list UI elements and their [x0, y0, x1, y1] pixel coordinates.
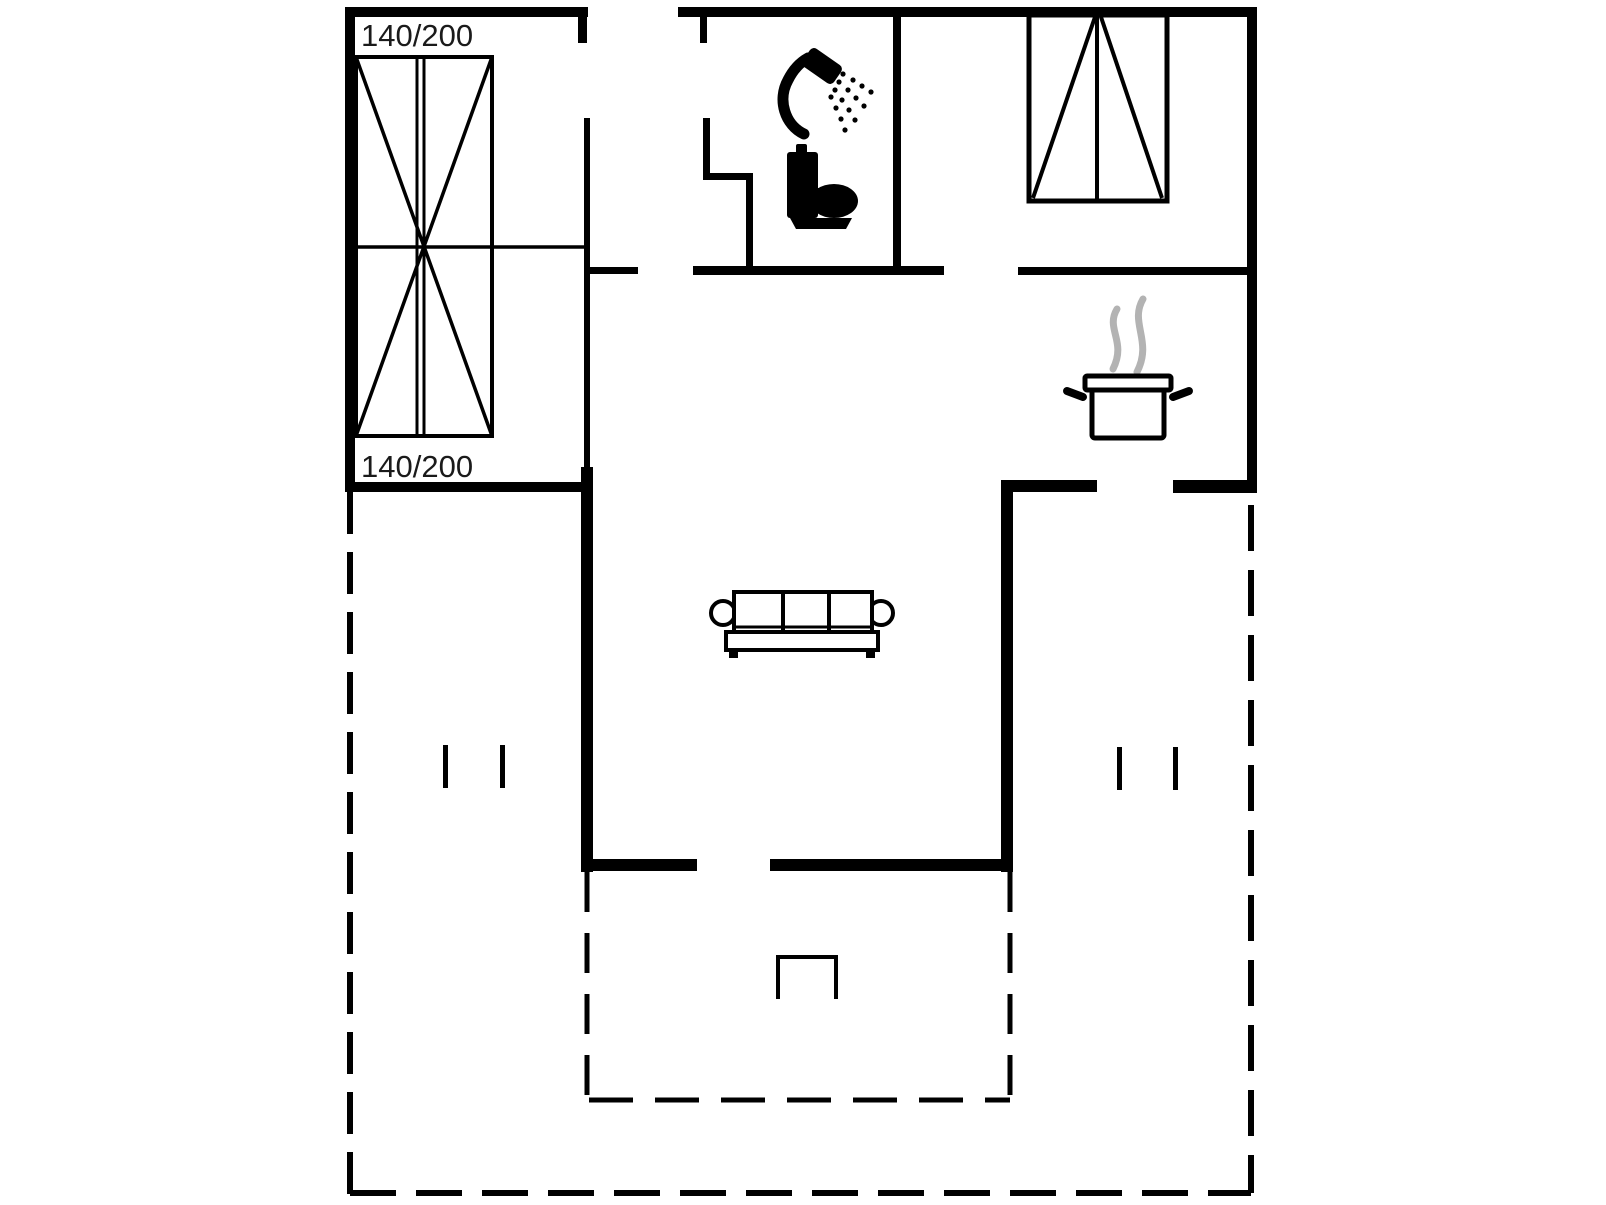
spray-dot	[838, 116, 843, 121]
shower-spray-dots	[828, 71, 873, 132]
spray-dot	[852, 117, 857, 122]
sofa-icon	[711, 592, 893, 658]
sofa-foot-left	[729, 650, 738, 658]
entry-door-jamb-right	[700, 17, 707, 43]
bed-size-label-bottom: 140/200	[361, 449, 473, 484]
kitchen-bottom-wall-left	[1013, 480, 1097, 492]
spray-dot	[842, 127, 847, 132]
bathroom-right-wall	[893, 17, 901, 273]
sofa-foot-right	[866, 650, 875, 658]
shower-wall-vertical-lower	[746, 173, 753, 273]
door-mark-left-1	[443, 745, 448, 788]
terrace-door-marks	[443, 745, 1178, 790]
spray-dot	[846, 107, 851, 112]
top-wall-right-segment	[678, 7, 1257, 17]
cooking-pot-icon	[1067, 299, 1189, 438]
spray-dot	[859, 83, 864, 88]
door-mark-right-1	[1117, 747, 1122, 790]
sofa-armrest-left	[711, 601, 735, 625]
pot-rim	[1085, 376, 1171, 390]
grill-icon	[778, 957, 836, 999]
bedroom2-bottom-wall	[1018, 267, 1257, 275]
spray-dot	[840, 71, 845, 76]
shower-wall-horizontal	[703, 173, 753, 180]
pot-handle-right	[1173, 391, 1189, 397]
double-bed-icon	[351, 57, 584, 436]
living-bottom-wall-left	[581, 859, 697, 871]
pot-handle-left	[1067, 391, 1083, 397]
wardrobe-icon	[1029, 15, 1167, 201]
bed-size-label-top: 140/200	[361, 18, 473, 53]
living-right-wall	[1001, 480, 1013, 872]
spray-dot	[828, 94, 833, 99]
shower-icon	[783, 46, 874, 134]
spray-dot	[853, 95, 858, 100]
pot-body	[1092, 388, 1164, 438]
shower-head	[800, 46, 844, 86]
door-mark-right-2	[1173, 747, 1178, 790]
hall-wall-stub	[590, 267, 638, 274]
outer-left-wall	[345, 7, 355, 492]
floor-plan: 140/200 140/200	[0, 0, 1606, 1205]
outer-right-wall	[1247, 7, 1257, 493]
kitchen-bottom-wall-right	[1173, 480, 1257, 493]
toilet-bowl	[810, 184, 858, 218]
shower-wall-vertical-upper	[703, 118, 710, 180]
steam-wave-left	[1113, 309, 1118, 369]
living-bottom-wall-right	[770, 859, 1013, 871]
bathroom-bottom-wall	[693, 266, 944, 275]
hall-left-wall	[581, 467, 593, 872]
toilet-base	[790, 218, 852, 229]
sofa-seat-front	[726, 632, 878, 650]
spray-dot	[839, 97, 844, 102]
spray-dot	[845, 87, 850, 92]
toilet-icon	[787, 144, 858, 229]
spray-dot	[861, 103, 866, 108]
steam-wave-right	[1137, 299, 1143, 372]
entry-door-jamb-left	[578, 17, 587, 43]
shower-arm	[783, 58, 808, 134]
bedroom-right-wall	[584, 118, 590, 482]
door-mark-left-2	[500, 745, 505, 788]
spray-dot	[850, 77, 855, 82]
top-wall-left-segment	[345, 7, 588, 17]
spray-dot	[832, 87, 837, 92]
spray-dot	[868, 89, 873, 94]
spray-dot	[836, 79, 841, 84]
spray-dot	[833, 105, 838, 110]
